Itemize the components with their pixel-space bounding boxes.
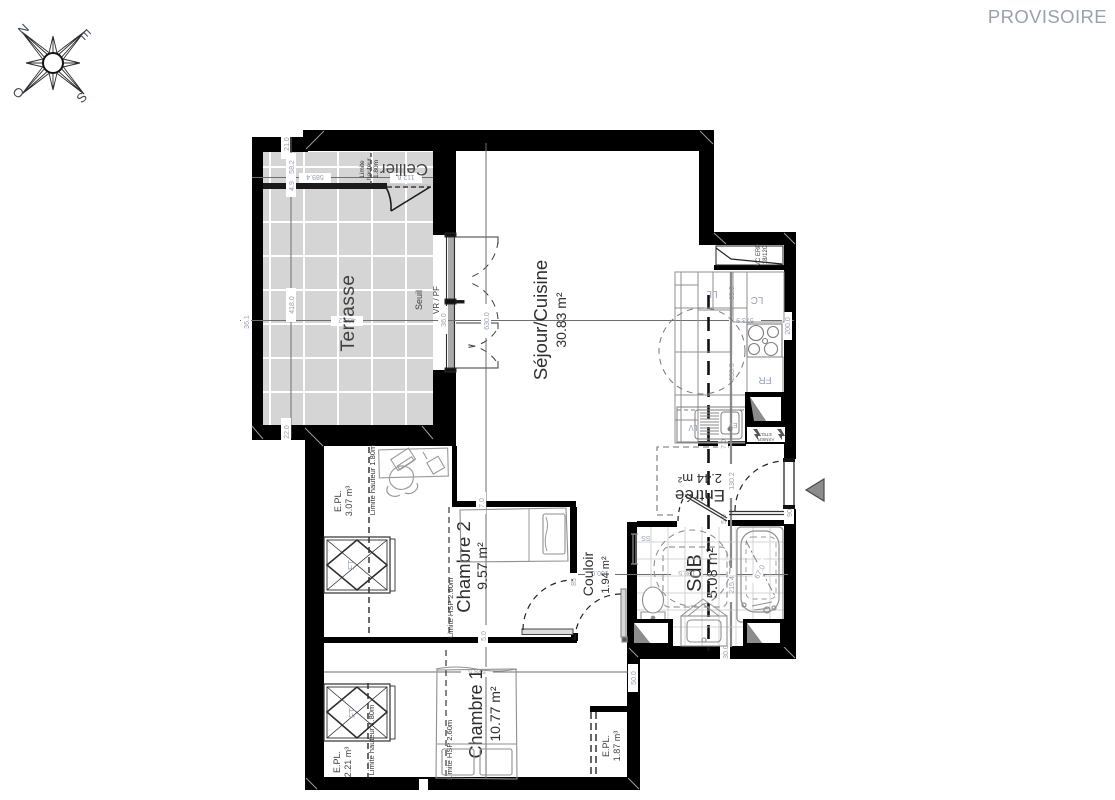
svg-text:Cellier: Cellier xyxy=(380,160,429,179)
svg-text:22.0: 22.0 xyxy=(284,425,291,439)
svg-text:Limite hauteur 1.80m: Limite hauteur 1.80m xyxy=(367,705,376,775)
svg-text:58.2: 58.2 xyxy=(289,160,296,174)
svg-text:Chambre 1: Chambre 1 xyxy=(466,669,486,758)
svg-text:PROVISOIRE: PROVISOIRE xyxy=(988,6,1107,27)
svg-text:E.PL.: E.PL. xyxy=(333,490,343,512)
svg-text:EV: EV xyxy=(728,421,738,428)
svg-text:85: 85 xyxy=(571,578,578,586)
svg-text:3.07 m³: 3.07 m³ xyxy=(344,486,354,517)
svg-text:Terrasse: Terrasse xyxy=(338,275,359,352)
svg-text:SS: SS xyxy=(641,534,651,541)
svg-text:30.0: 30.0 xyxy=(723,645,730,659)
svg-text:5.08 m²: 5.08 m² xyxy=(704,548,721,599)
svg-text:ASNIER: ASNIER xyxy=(757,437,775,442)
svg-text:E.PL.: E.PL. xyxy=(601,735,611,757)
svg-text:5.0: 5.0 xyxy=(481,631,488,641)
svg-text:Limite HSP 2.60m: Limite HSP 2.60m xyxy=(445,720,454,780)
svg-text:LC: LC xyxy=(751,294,764,305)
svg-text:10.77 m²: 10.77 m² xyxy=(487,686,503,742)
svg-text:18/120: 18/120 xyxy=(763,245,769,264)
svg-text:Limite hauteur 1.80m: Limite hauteur 1.80m xyxy=(368,445,377,515)
svg-text:1.80m: 1.80m xyxy=(373,160,380,178)
svg-text:Séjour/Cuisine: Séjour/Cuisine xyxy=(530,260,551,380)
svg-text:7.0: 7.0 xyxy=(721,439,728,449)
svg-text:FT: FT xyxy=(347,560,356,570)
svg-text:ETEL: ETEL xyxy=(760,432,772,437)
svg-text:215.4: 215.4 xyxy=(729,576,736,594)
svg-text:200.0: 200.0 xyxy=(785,317,792,335)
svg-text:1.94 m²: 1.94 m² xyxy=(600,556,612,594)
svg-text:VR / PF: VR / PF xyxy=(432,286,441,314)
svg-text:21.0: 21.0 xyxy=(284,137,291,151)
svg-text:2.44 m²: 2.44 m² xyxy=(677,471,722,486)
svg-text:9.57 m²: 9.57 m² xyxy=(474,542,490,590)
svg-text:50.0: 50.0 xyxy=(631,671,638,685)
svg-text:FT: FT xyxy=(348,708,357,718)
svg-text:E.PL.: E.PL. xyxy=(332,751,342,773)
svg-text:36.0: 36.0 xyxy=(441,313,448,327)
svg-text:LV: LV xyxy=(688,423,698,432)
svg-text:1.87 m³: 1.87 m³ xyxy=(612,731,622,762)
svg-text:Limite HSP 2.60m: Limite HSP 2.60m xyxy=(446,578,455,638)
svg-text:LL: LL xyxy=(706,288,718,299)
svg-text:Chambre 2: Chambre 2 xyxy=(453,521,474,613)
svg-text:FR: FR xyxy=(758,374,771,385)
svg-text:36.1: 36.1 xyxy=(244,315,251,329)
svg-text:418.0: 418.0 xyxy=(289,296,296,314)
svg-text:VC ERP: VC ERP xyxy=(756,244,762,266)
svg-text:589.4: 589.4 xyxy=(306,173,324,180)
svg-text:SdB: SdB xyxy=(684,554,706,592)
svg-text:2.21 m³: 2.21 m³ xyxy=(343,747,353,778)
svg-text:130.2: 130.2 xyxy=(729,472,736,490)
svg-text:Couloir: Couloir xyxy=(580,551,596,596)
svg-text:630.0: 630.0 xyxy=(484,312,491,330)
svg-text:Limite: Limite xyxy=(359,160,366,178)
svg-text:Seuil: Seuil xyxy=(414,290,424,310)
svg-text:hauteur: hauteur xyxy=(366,157,373,180)
svg-text:30.83 m²: 30.83 m² xyxy=(553,292,569,348)
svg-text:7.0: 7.0 xyxy=(479,498,486,508)
svg-text:4.9: 4.9 xyxy=(289,181,296,191)
